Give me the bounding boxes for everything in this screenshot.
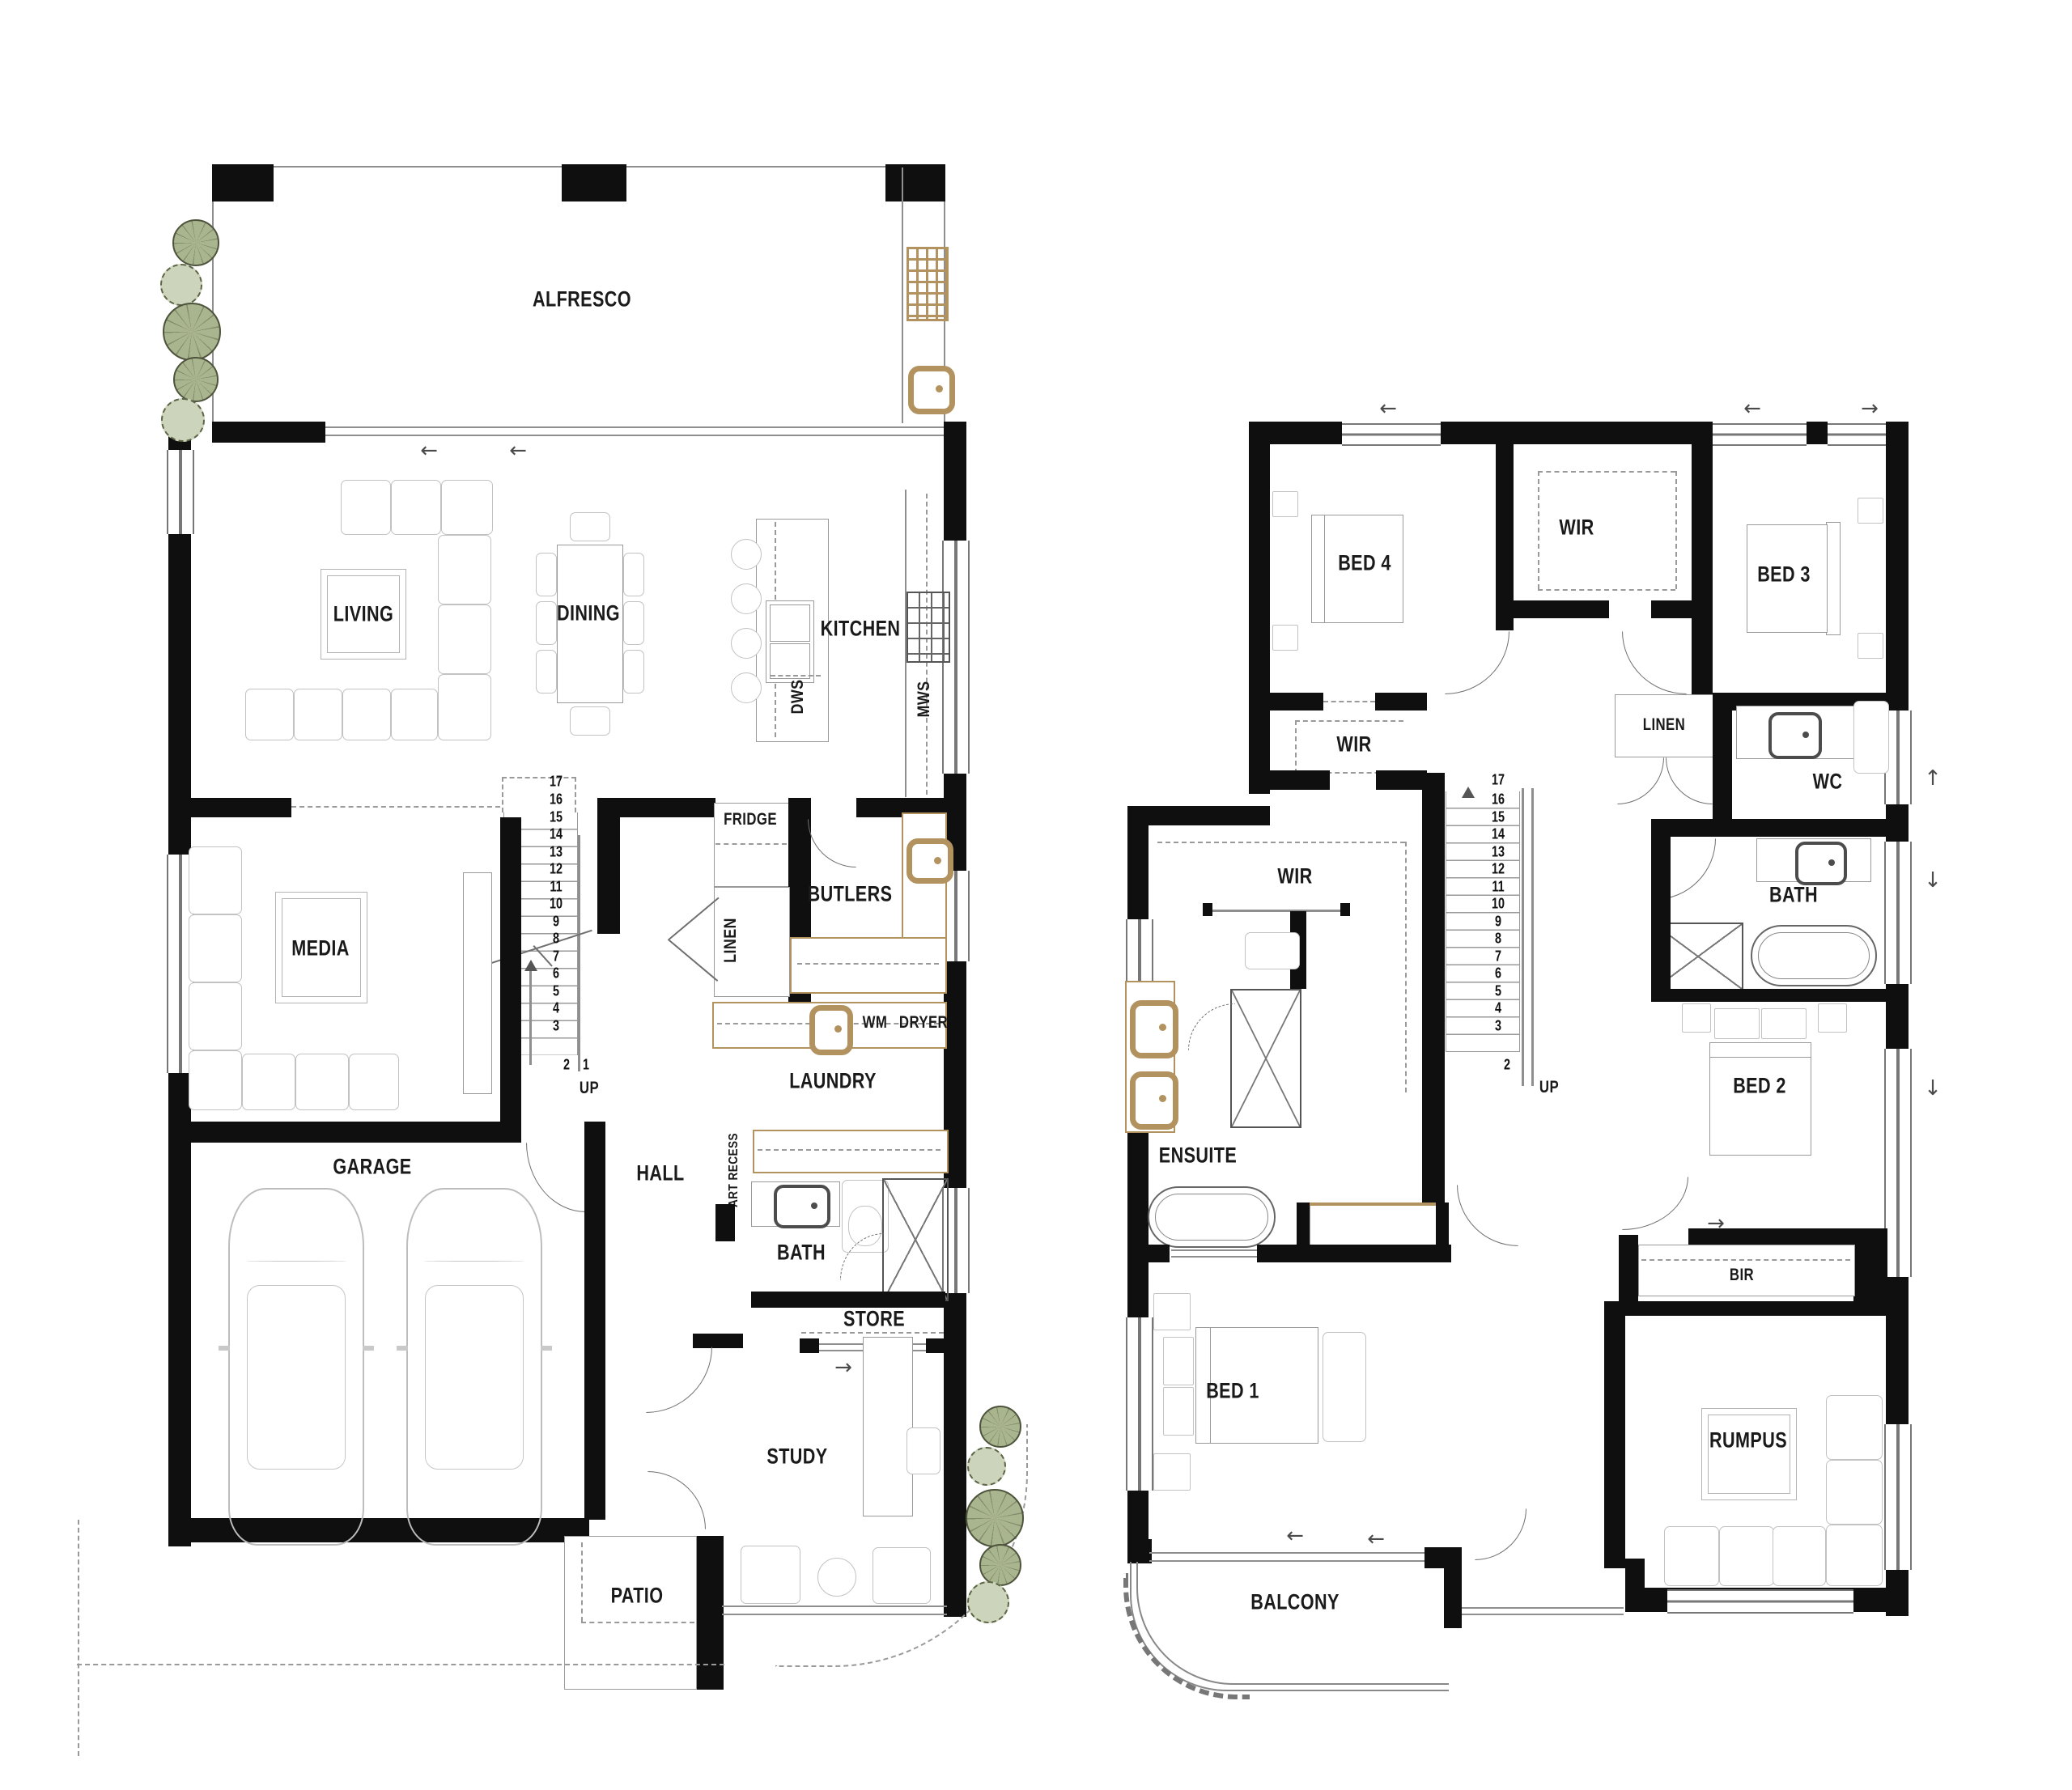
window-arrow-icon: ↓ <box>1924 1076 1942 1101</box>
wall <box>926 1338 945 1353</box>
wall <box>1376 770 1427 790</box>
room-label-bath-u: BATH <box>1769 883 1818 908</box>
line <box>801 1332 944 1334</box>
window-arrow-icon: ↓ <box>1924 868 1942 893</box>
wall <box>1249 422 1270 794</box>
wall <box>885 164 945 201</box>
bedside-table <box>1858 633 1883 659</box>
stair-number: 11 <box>550 879 562 896</box>
art-recess-bench <box>753 1130 949 1173</box>
wall <box>1619 1301 1887 1316</box>
line <box>1295 720 1297 774</box>
sofa-module <box>1826 1395 1883 1460</box>
cavity-slider <box>1171 1249 1257 1251</box>
bed-headboard <box>1826 522 1841 635</box>
line <box>1675 471 1677 589</box>
chair <box>536 650 557 694</box>
sofa-module <box>1826 1525 1883 1586</box>
bedside-table <box>1682 1003 1711 1033</box>
cooktop-icon <box>906 592 950 663</box>
room-label-alfresco: ALFRESCO <box>533 287 631 312</box>
room-label-bir: BIR <box>1730 1266 1754 1285</box>
room-label-living: LIVING <box>333 602 393 627</box>
wall <box>715 1204 735 1241</box>
line <box>902 168 903 423</box>
cavity-slider <box>1171 1256 1257 1258</box>
fixture-label-mws: MWS <box>915 681 934 718</box>
stair-number: 4 <box>1495 1000 1501 1017</box>
wall <box>597 798 620 934</box>
rug <box>1708 1415 1790 1494</box>
wall <box>1340 903 1350 916</box>
room-label-dining: DINING <box>557 601 620 626</box>
door-arc <box>526 1143 586 1212</box>
bedside-table <box>1272 625 1298 651</box>
stair-number: 12 <box>1492 861 1505 878</box>
room-label-bed4: BED 4 <box>1338 551 1391 576</box>
window <box>1884 1424 1912 1570</box>
stair-number: 11 <box>1492 879 1504 896</box>
room-label-bath: BATH <box>777 1241 826 1266</box>
wall <box>500 817 521 1123</box>
stool <box>731 628 762 659</box>
butlers-bench <box>790 937 947 994</box>
line <box>1295 720 1403 722</box>
stair-number: 7 <box>553 948 559 965</box>
sofa-module <box>1664 1526 1719 1586</box>
wall <box>168 798 291 817</box>
butlers-sink-icon <box>906 838 953 884</box>
line <box>1462 1614 1624 1615</box>
fixture-label-up: UP <box>580 1079 599 1098</box>
sofa-module <box>245 689 294 740</box>
chair <box>536 553 557 596</box>
line <box>581 1542 583 1622</box>
tree-icon <box>173 357 219 402</box>
window <box>1709 423 1807 446</box>
ensuite-sink-icon <box>1130 1071 1178 1130</box>
wall <box>562 164 626 201</box>
chair <box>623 601 644 645</box>
floor-plan-canvas: ALFRESCO ← ← LIVING <box>0 0 2072 1790</box>
window-arrow-icon: → <box>1861 397 1879 421</box>
room-label-butlers: BUTLERS <box>808 882 893 907</box>
bedside-table <box>1272 491 1298 517</box>
bedside-table <box>1153 1453 1191 1491</box>
bbq-icon <box>906 247 949 321</box>
room-label-wir-a: WIR <box>1559 515 1594 541</box>
room-label-store: STORE <box>843 1307 905 1332</box>
door-slide-arrow-icon: ← <box>1367 1527 1385 1551</box>
pillow <box>1163 1337 1194 1385</box>
stair-handrail <box>578 835 580 1071</box>
room-label-balcony: BALCONY <box>1250 1590 1340 1615</box>
line <box>1538 471 1539 589</box>
pillow <box>1714 1008 1760 1039</box>
wall <box>1127 1539 1152 1563</box>
bedside-table <box>1818 1003 1847 1033</box>
sliding-door-track <box>325 426 944 428</box>
stair-number: 8 <box>553 931 559 948</box>
room-label-bed1: BED 1 <box>1206 1379 1259 1404</box>
window-arrow-icon: ↑ <box>1924 766 1942 791</box>
sofa-module <box>189 914 242 982</box>
stair-direction-arrow-icon <box>524 960 537 971</box>
wall <box>1651 837 1671 1002</box>
wall <box>1375 693 1427 710</box>
sofa-module <box>438 535 491 604</box>
wall <box>1651 819 1887 837</box>
chair <box>623 650 644 694</box>
pillow <box>1761 1008 1807 1039</box>
wall <box>1249 693 1323 710</box>
door-arc <box>1617 757 1664 804</box>
sofa-module <box>438 674 491 740</box>
tree-icon <box>979 1406 1021 1448</box>
room-label-media: MEDIA <box>291 936 350 961</box>
stair-number: 3 <box>1495 1018 1501 1035</box>
stair-number: 17 <box>550 774 563 791</box>
stair-direction-line <box>529 971 532 1065</box>
bathtub-icon <box>1148 1186 1276 1248</box>
stair-number: 15 <box>550 809 563 826</box>
sofa-module <box>189 846 242 914</box>
wall <box>1625 1559 1645 1612</box>
patio-outline <box>564 1536 697 1690</box>
stool <box>731 583 762 614</box>
stair-number: 2 <box>1504 1057 1510 1074</box>
wall <box>1436 1203 1449 1249</box>
sofa-module <box>349 1054 399 1110</box>
line <box>1641 1259 1850 1261</box>
stair-number: 1 <box>583 1057 589 1074</box>
stair-number: 9 <box>1495 914 1501 931</box>
window <box>167 450 194 534</box>
wall <box>1604 1301 1625 1568</box>
room-label-ensuite: ENSUITE <box>1159 1143 1237 1169</box>
room-label-linen-u: LINEN <box>1643 715 1685 735</box>
line <box>1157 842 1405 843</box>
wall <box>1713 693 1732 837</box>
window <box>1126 919 1153 982</box>
wall <box>1257 1245 1451 1262</box>
stair-number: 13 <box>550 844 563 861</box>
bed <box>1709 1057 1811 1156</box>
stair-number: 5 <box>1495 983 1501 1000</box>
sofa-module <box>438 604 491 674</box>
fixture-label-dryer: DRYER <box>899 1013 948 1033</box>
stair-number: 3 <box>553 1018 559 1035</box>
sofa-module <box>391 689 438 740</box>
sofa-module <box>341 480 391 535</box>
line <box>1462 1607 1624 1609</box>
bed-end-bench <box>1323 1332 1366 1442</box>
wall <box>1127 806 1270 825</box>
sofa-module <box>342 689 391 740</box>
shrub-icon <box>160 264 202 306</box>
kitchen-sink-bowl <box>770 604 810 642</box>
stair-number: 4 <box>553 1000 559 1017</box>
door-slide-arrow-icon: ← <box>420 439 438 463</box>
bench-top <box>1310 1203 1436 1206</box>
wall <box>1692 422 1713 697</box>
stair-number: 14 <box>550 826 563 843</box>
tree-icon <box>172 219 219 266</box>
wall <box>1496 439 1514 630</box>
line <box>771 675 821 677</box>
wall <box>751 1292 945 1308</box>
fixture-label-fridge: FRIDGE <box>724 810 777 829</box>
stair-number: 10 <box>1492 896 1505 913</box>
room-label-kitchen: KITCHEN <box>821 617 901 642</box>
line <box>575 777 576 812</box>
stair-number: 8 <box>1495 931 1501 948</box>
wall <box>212 422 325 443</box>
door-arc <box>1666 757 1713 804</box>
room-label-garage: GARAGE <box>333 1155 411 1180</box>
door-arc <box>1457 1185 1518 1246</box>
wall <box>1441 422 1709 444</box>
stool <box>731 672 762 703</box>
tree-icon <box>163 303 221 361</box>
door-leaf <box>668 939 719 982</box>
room-label-patio: PATIO <box>611 1584 664 1609</box>
car-icon <box>406 1188 542 1546</box>
sofa-module <box>441 480 493 535</box>
door-arc <box>646 1347 712 1413</box>
chair <box>570 706 610 736</box>
stair-number: 16 <box>1492 791 1505 808</box>
sofa-module <box>189 1050 242 1110</box>
bedside-table <box>1858 498 1883 524</box>
window-arrow-icon: ← <box>1743 397 1761 421</box>
shrub-icon <box>967 1447 1006 1486</box>
door-arc <box>1445 631 1509 694</box>
window <box>1667 1589 1853 1614</box>
wall <box>212 164 274 201</box>
door-arc <box>1622 631 1687 694</box>
wall <box>1249 422 1342 444</box>
stair-number: 13 <box>1492 844 1505 861</box>
wall <box>800 1338 819 1353</box>
shrub-icon <box>161 398 205 442</box>
sofa-module <box>294 689 342 740</box>
door-arc <box>1475 1508 1526 1560</box>
stair-number: 12 <box>550 861 563 878</box>
line <box>1538 471 1675 473</box>
stair-number: 2 <box>563 1057 570 1074</box>
fixture-label-dws: DWS <box>788 680 808 715</box>
stool <box>731 539 762 570</box>
chair <box>570 512 610 541</box>
stair-number: 16 <box>550 791 563 808</box>
room-label-bed3: BED 3 <box>1757 562 1811 587</box>
room-label-laundry: LAUNDRY <box>789 1069 877 1094</box>
stair-number: 10 <box>550 896 563 913</box>
window <box>1342 423 1441 446</box>
door-arc <box>647 1471 706 1529</box>
chair <box>623 553 644 596</box>
tree-icon <box>979 1544 1021 1586</box>
fixture-label-art-recess: ART RECESS <box>727 1133 741 1207</box>
wall <box>1807 422 1828 444</box>
line <box>758 1149 940 1151</box>
wall <box>1512 600 1609 618</box>
tv-cabinet <box>463 872 492 1094</box>
sofa-module <box>1773 1526 1826 1586</box>
bench <box>1310 1204 1437 1249</box>
bedside-table <box>1153 1293 1191 1330</box>
shower-icon <box>1230 989 1301 1128</box>
staircase <box>1446 791 1520 1052</box>
pillow <box>1163 1387 1194 1436</box>
sofa-module <box>1826 1460 1883 1525</box>
stair-handrail <box>1531 788 1534 1086</box>
sofa-module <box>391 480 441 535</box>
shower-icon <box>882 1178 949 1301</box>
window-arrow-icon: ← <box>1379 397 1397 421</box>
window <box>1884 1049 1912 1277</box>
kitchen-sink-bowl <box>770 643 810 679</box>
line <box>1405 842 1407 1092</box>
door-slide-arrow-icon: → <box>834 1355 852 1380</box>
line <box>291 806 500 808</box>
room-label-hall: HALL <box>636 1161 684 1186</box>
wc-sink-icon <box>1768 712 1822 759</box>
stair-number: 6 <box>1495 965 1501 982</box>
bath-sink-icon <box>1795 842 1847 885</box>
wall <box>1249 770 1330 790</box>
sofa-module <box>189 982 242 1050</box>
wall <box>693 1536 724 1690</box>
line <box>581 1622 694 1623</box>
stair-handrail <box>1522 788 1524 1086</box>
toilet-icon <box>1853 701 1889 774</box>
laundry-sink-icon <box>809 1005 853 1055</box>
chair <box>536 601 557 645</box>
stair-number: 15 <box>1492 809 1505 826</box>
wall <box>584 1122 605 1520</box>
sofa-module <box>1719 1526 1774 1586</box>
door-slide-arrow-icon: ← <box>509 439 527 463</box>
door-slide-arrow-icon: → <box>1707 1211 1725 1236</box>
car-icon <box>228 1188 364 1546</box>
fixture-label-wm: WM <box>863 1013 888 1033</box>
wall <box>620 798 715 817</box>
boundary-line <box>78 1520 79 1756</box>
line <box>715 843 787 845</box>
door-arc <box>1622 1177 1688 1230</box>
ensuite-sink-icon <box>1130 1000 1178 1058</box>
bath-sink-icon <box>774 1185 830 1228</box>
wall <box>1297 1203 1310 1249</box>
tree-icon <box>966 1489 1024 1547</box>
room-label-wir-b: WIR <box>1336 732 1371 757</box>
window <box>1126 1317 1153 1491</box>
fixture-label-up-u: UP <box>1539 1078 1559 1097</box>
outdoor-sink-icon <box>908 366 955 414</box>
stair-number: 7 <box>1495 948 1501 965</box>
wall <box>1651 989 1887 1002</box>
wall <box>1853 1235 1887 1303</box>
bathtub-icon <box>1751 925 1877 986</box>
door-arc <box>808 819 856 867</box>
bed-headboard <box>1709 1042 1811 1058</box>
robe-rail <box>1208 910 1345 912</box>
stair-number: 5 <box>553 983 559 1000</box>
sofa-module <box>242 1054 295 1110</box>
fixture-label-linen: LINEN <box>721 918 741 963</box>
wall <box>1422 773 1445 1261</box>
boundary-line <box>77 1664 724 1665</box>
line <box>1538 589 1675 591</box>
door-slide-arrow-icon: ← <box>1286 1524 1304 1548</box>
door-arc <box>1188 1003 1235 1050</box>
room-label-wir-c: WIR <box>1277 864 1312 889</box>
window <box>1884 842 1912 984</box>
sliding-door-track <box>325 435 944 436</box>
stair-number: 6 <box>553 965 559 982</box>
sofa-module <box>295 1054 349 1110</box>
door-leaf <box>669 897 720 940</box>
line <box>502 777 576 778</box>
shrub-icon <box>967 1581 1009 1623</box>
line <box>502 777 503 812</box>
room-label-rumpus: RUMPUS <box>1709 1428 1787 1453</box>
balcony-hatch <box>1123 1573 1250 1699</box>
wall <box>168 1122 521 1143</box>
stair-number: 14 <box>1492 826 1505 843</box>
wall <box>1127 1245 1170 1262</box>
line <box>1323 701 1375 702</box>
room-label-wc: WC <box>1813 770 1843 795</box>
stair-direction-arrow-icon <box>1462 787 1475 798</box>
sliding-door-track <box>1149 1552 1424 1554</box>
stair-number: 17 <box>1492 772 1505 789</box>
wall <box>1203 903 1212 916</box>
toilet-icon <box>1245 932 1300 969</box>
room-label-bed2: BED 2 <box>1733 1074 1786 1099</box>
wall <box>1619 1235 1638 1303</box>
stair-number: 9 <box>553 914 559 931</box>
line <box>797 963 939 965</box>
